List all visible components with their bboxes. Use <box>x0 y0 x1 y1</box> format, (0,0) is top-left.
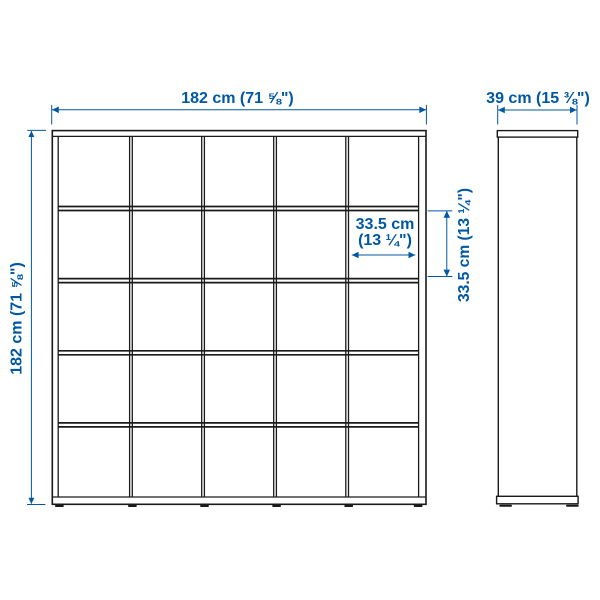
svg-text:39 cm (15 ⅜"): 39 cm (15 ⅜") <box>486 90 590 107</box>
svg-text:182 cm (71 ⅝"): 182 cm (71 ⅝") <box>9 262 26 375</box>
svg-text:182 cm (71 ⅝"): 182 cm (71 ⅝") <box>181 90 294 107</box>
svg-text:(13 ¼"): (13 ¼") <box>358 232 412 249</box>
svg-text:33.5 cm (13 ¼"): 33.5 cm (13 ¼") <box>456 188 473 302</box>
svg-text:33.5 cm: 33.5 cm <box>356 216 415 233</box>
